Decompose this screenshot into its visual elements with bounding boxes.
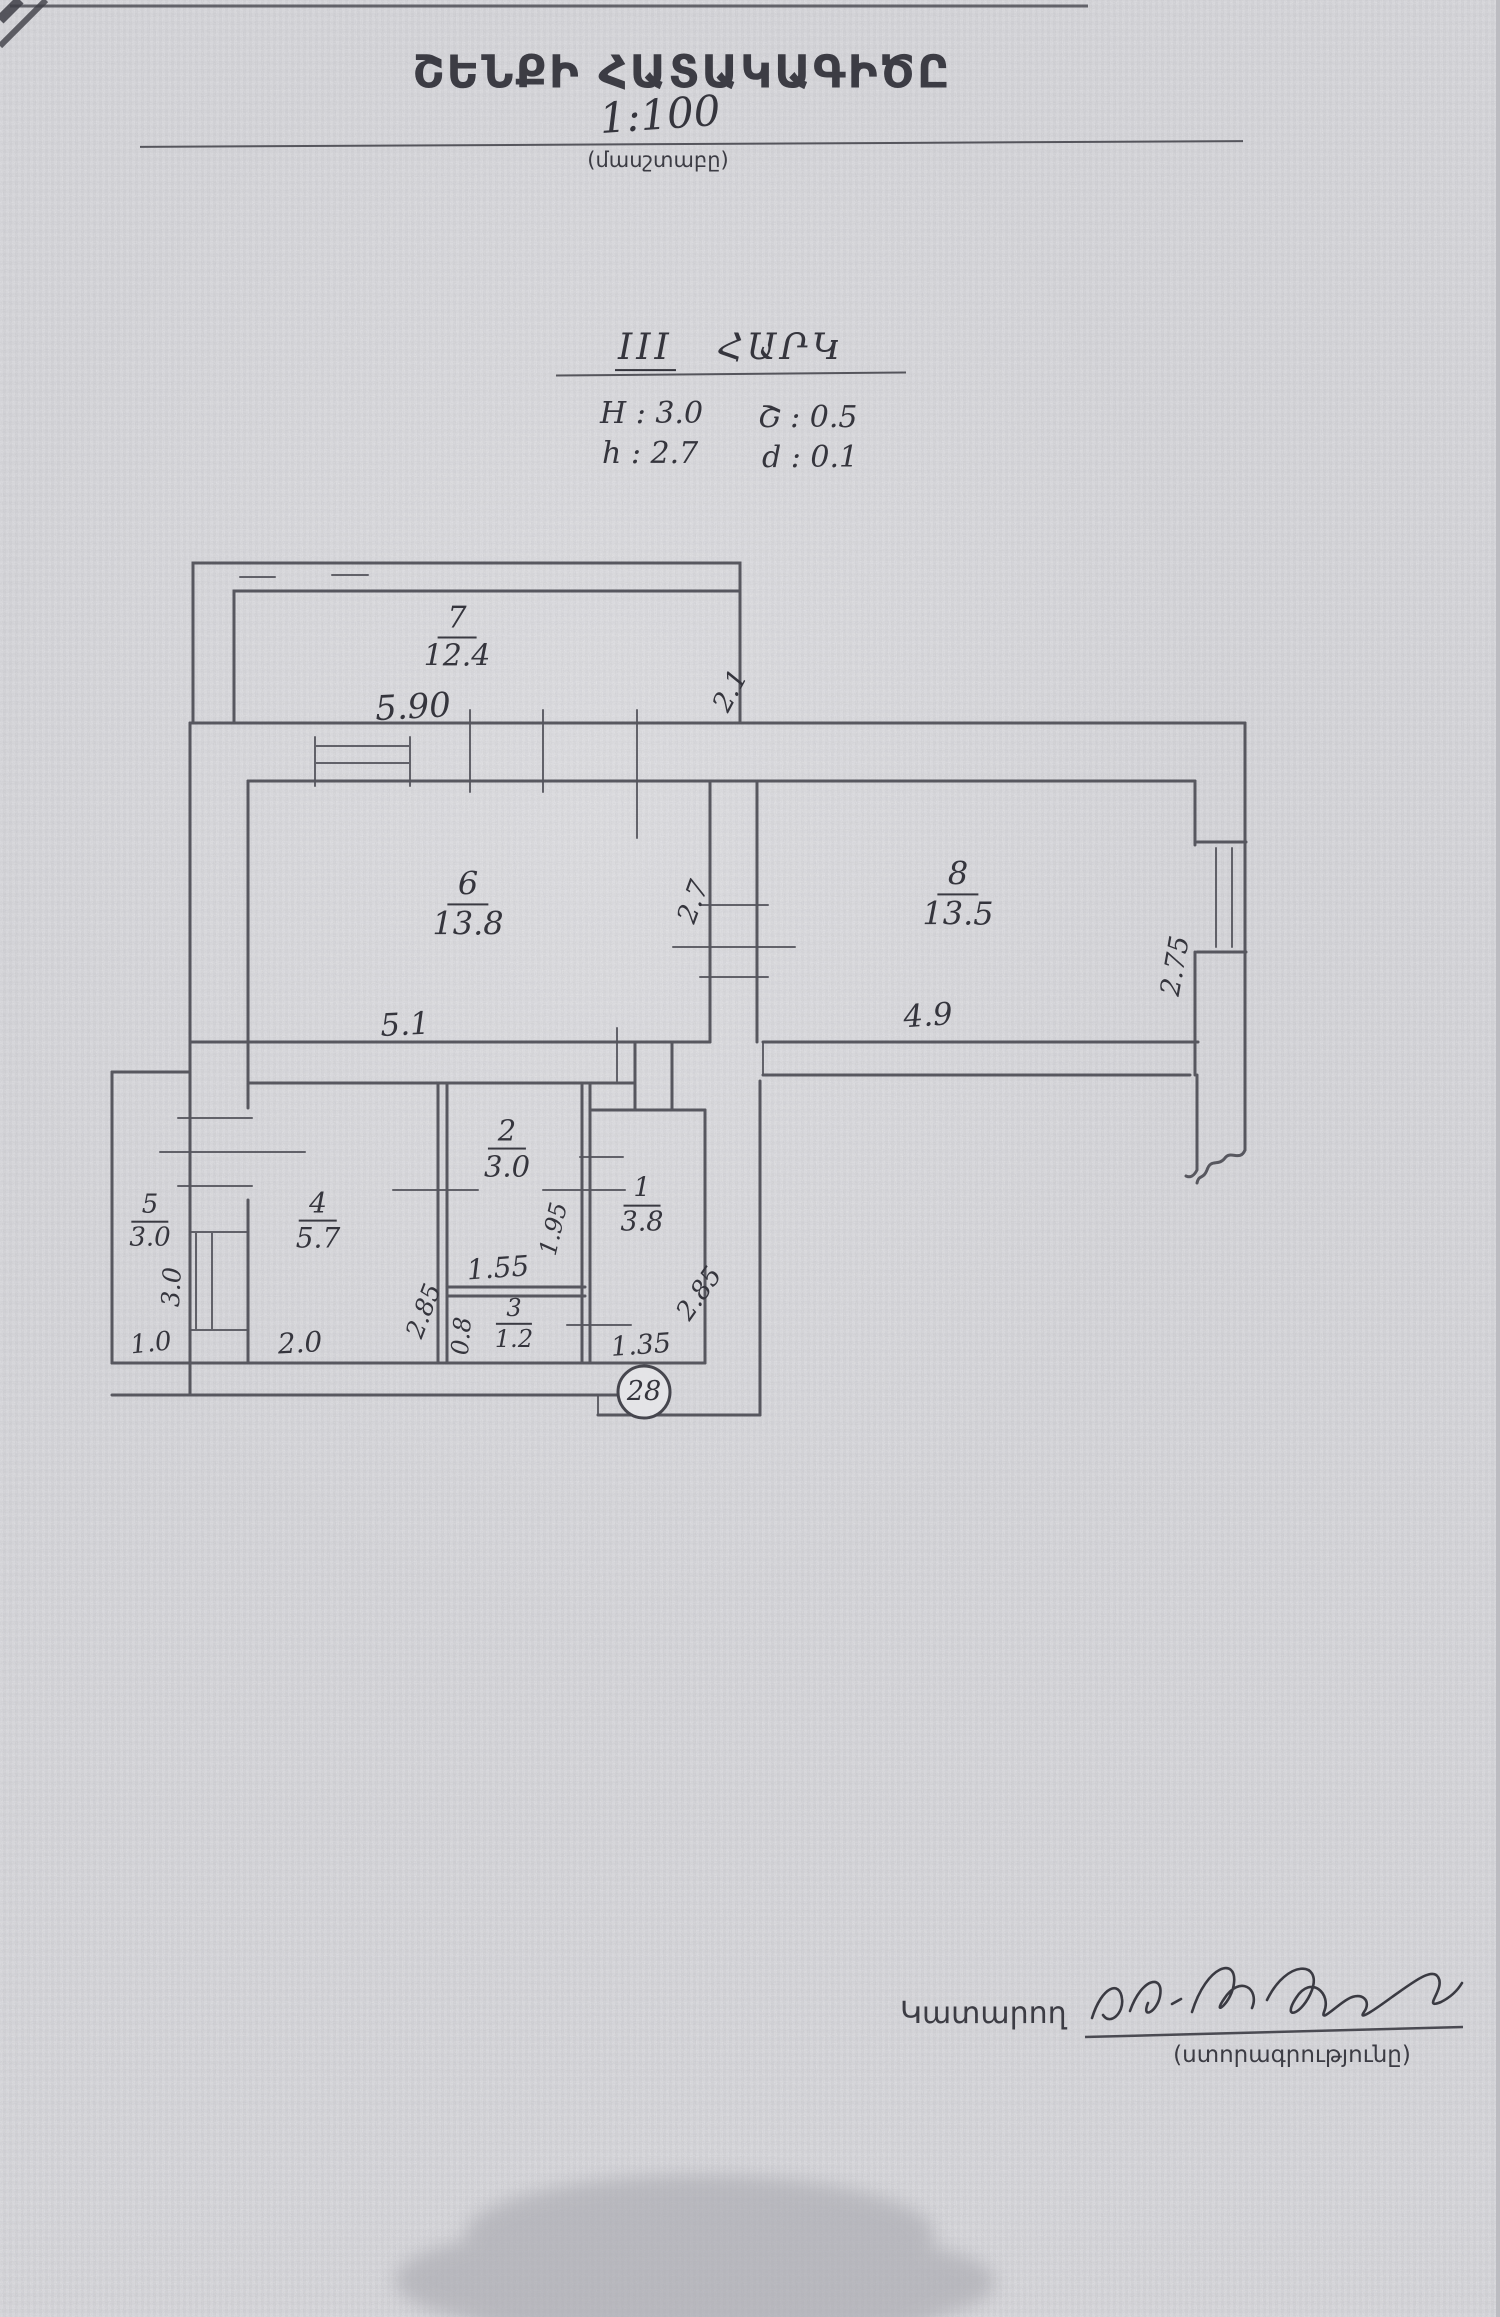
dim-1-35: 1.35 xyxy=(610,1330,672,1362)
dim-0-8: 0.8 xyxy=(448,1316,476,1356)
room-7-label: 7 12.4 xyxy=(424,603,491,672)
room-8-number: 8 xyxy=(938,857,978,895)
room-7-number: 7 xyxy=(437,603,476,639)
dim-1-55: 1.55 xyxy=(466,1251,530,1285)
room-4-label: 4 5.7 xyxy=(296,1189,341,1254)
param-sh: Շ : 0.5 xyxy=(758,402,858,434)
room-5-area: 3.0 xyxy=(129,1225,170,1252)
room-3-area: 1.2 xyxy=(495,1327,533,1352)
room-5-number: 5 xyxy=(132,1192,169,1223)
room-1-number: 1 xyxy=(623,1175,660,1207)
title-rule xyxy=(140,140,1243,148)
room-2-area: 3.0 xyxy=(484,1152,530,1182)
room-8-area: 13.5 xyxy=(922,897,993,931)
signature-caption: (ստորագրությունը) xyxy=(1173,2043,1411,2067)
room-2-label: 2 3.0 xyxy=(484,1116,530,1183)
room-7-area: 12.4 xyxy=(424,640,491,672)
scanned-floor-plan-page: ՇԵՆՔԻ ՀԱՏԱԿԱԳԻԾԸ 1:100 (մասշտաբը) III ՀԱ… xyxy=(0,0,1500,2317)
dim-1-0: 1.0 xyxy=(129,1328,173,1359)
dim-2-7: 2.7 xyxy=(673,877,714,927)
dim-2-1: 2.1 xyxy=(708,665,753,716)
scan-smudge-blob xyxy=(395,2175,995,2317)
dim-2-0: 2.0 xyxy=(277,1327,323,1359)
room-6-area: 13.8 xyxy=(432,907,503,941)
room-1-area: 3.8 xyxy=(621,1209,664,1237)
room-5-label: 5 3.0 xyxy=(129,1192,170,1253)
scale-value: 1:100 xyxy=(598,89,722,141)
dim-2-75: 2.75 xyxy=(1157,934,1195,998)
plan-walls xyxy=(112,563,1246,1415)
floor-underline xyxy=(556,371,906,376)
room-8-label: 8 13.5 xyxy=(922,857,993,930)
dim-1-95: 1.95 xyxy=(536,1200,573,1258)
room-4-number: 4 xyxy=(299,1189,337,1222)
room-2-number: 2 xyxy=(488,1116,526,1150)
dim-5-1: 5.1 xyxy=(380,1007,431,1042)
floor-roman-numeral: III xyxy=(615,327,676,371)
executor-label: Կատարող xyxy=(900,1998,1067,2030)
signature-line xyxy=(1085,2027,1463,2037)
room-6-label: 6 13.8 xyxy=(432,867,503,940)
room-6-number: 6 xyxy=(448,867,488,905)
handwritten-signature xyxy=(1092,1968,1462,2019)
room-3-label: 3 1.2 xyxy=(495,1296,533,1352)
param-H: H : 3.0 xyxy=(600,398,703,430)
dim-2-85-room1: 2.85 xyxy=(672,1262,728,1325)
floor-word: ՀԱՐԿ xyxy=(717,327,845,368)
room-3-number: 3 xyxy=(496,1296,531,1325)
floor-label: III ՀԱՐԿ xyxy=(615,329,845,367)
dim-4-9: 4.9 xyxy=(902,998,953,1034)
scale-caption: (մասշտաբը) xyxy=(587,149,728,171)
apartment-number: 28 xyxy=(627,1378,661,1406)
param-h: h : 2.7 xyxy=(602,438,698,470)
param-d: d : 0.1 xyxy=(762,442,858,474)
room-4-area: 5.7 xyxy=(296,1224,341,1253)
room-1-label: 1 3.8 xyxy=(621,1175,664,1238)
signature-area xyxy=(1085,1968,1463,2037)
dim-2-85-room4: 2.85 xyxy=(402,1280,446,1341)
dim-3-0-vertical: 3.0 xyxy=(158,1266,186,1307)
dim-5-90: 5.90 xyxy=(374,688,451,728)
